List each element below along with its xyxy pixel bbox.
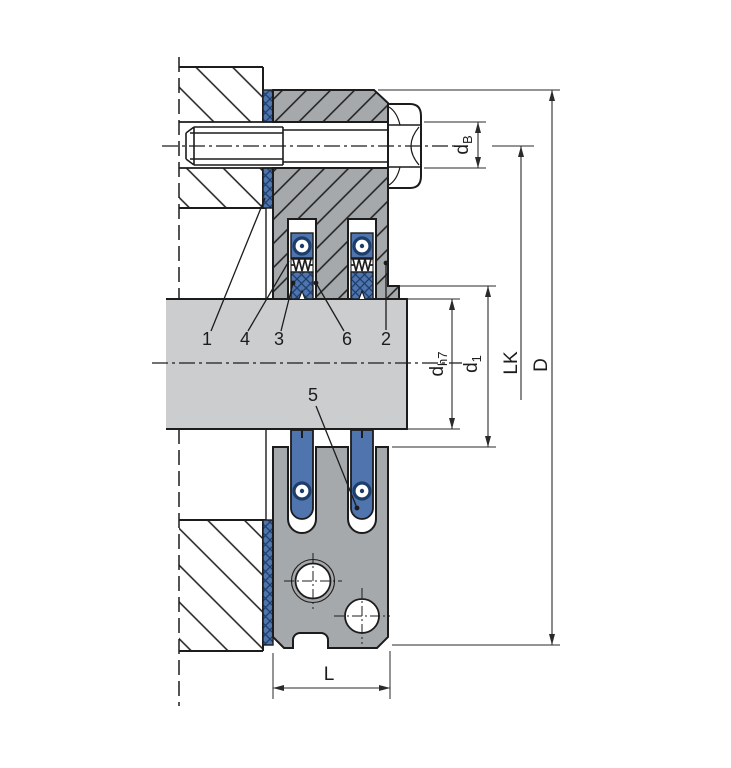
retainer-eyelet-1-center (300, 489, 304, 493)
technical-drawing-page: dB dh7 d1 LK D L (0, 0, 731, 768)
wall-section-upper-b (179, 168, 263, 208)
seal-cartridge-2 (351, 233, 373, 299)
flange-section-above-bolt (273, 90, 388, 122)
gasket-lower (263, 520, 273, 645)
seal-retainer-1 (291, 430, 313, 519)
D-label: D (531, 358, 552, 372)
callout-6: 6 (342, 329, 352, 349)
shaft (166, 299, 407, 429)
wall-section-upper-a (179, 67, 263, 122)
callout-1: 1 (202, 329, 212, 349)
callout-5: 5 (308, 385, 318, 405)
seal-retainer-2 (351, 430, 373, 519)
seal-cartridge-1 (291, 233, 313, 299)
seal2-oring-center (360, 244, 364, 248)
LK-label: LK (501, 351, 522, 375)
wall-section-lower (179, 520, 263, 651)
leader-6-dot (314, 281, 319, 286)
gasket-upper-a (263, 90, 273, 122)
shaft-body (166, 299, 407, 429)
retainer-eyelet-2-center (360, 489, 364, 493)
callout-2: 2 (381, 329, 391, 349)
callout-4: 4 (240, 329, 250, 349)
gasket-upper-b (263, 168, 273, 208)
seal1-oring-center (300, 244, 304, 248)
leader-3-dot (291, 281, 296, 286)
seal-assembly-drawing: dB dh7 d1 LK D L (0, 0, 731, 768)
leader-2-dot (384, 261, 389, 266)
leader-5-dot (355, 506, 360, 511)
L-label: L (324, 664, 335, 685)
callout-3: 3 (274, 329, 284, 349)
